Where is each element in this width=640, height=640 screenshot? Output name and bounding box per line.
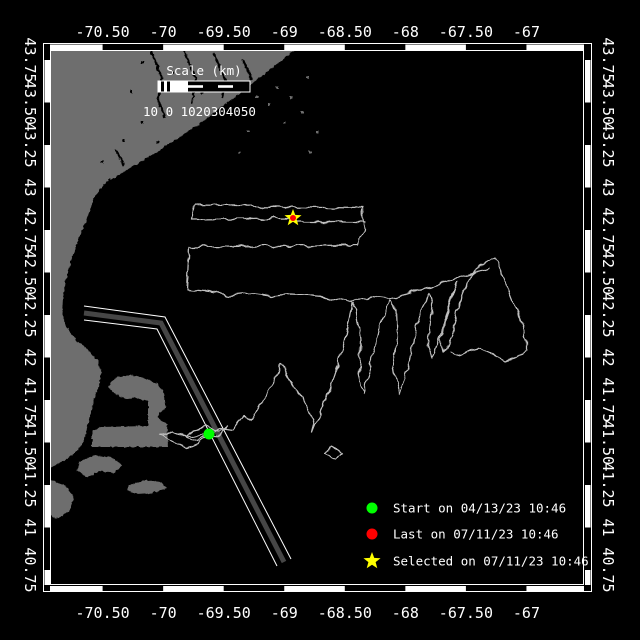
- y-tick-label-left: 43.25: [21, 122, 39, 167]
- frame-block-left: [45, 230, 51, 273]
- scale-bar-midline: [188, 85, 203, 88]
- y-tick-label-right: 43.50: [599, 80, 617, 125]
- scale-bar-segment: [173, 81, 188, 92]
- land-south-island: [50, 480, 74, 519]
- frame-block-right: [585, 145, 591, 188]
- land-marthas-vineyard: [77, 455, 123, 478]
- frame-block-bottom: [50, 586, 103, 592]
- islet-dot: [316, 131, 319, 134]
- scale-bar-midline: [218, 85, 233, 88]
- x-tick-label-bottom: -69: [271, 604, 298, 622]
- frame-block-bottom: [526, 586, 584, 592]
- x-tick-label-top: -69: [271, 23, 298, 41]
- y-tick-label-left: 41.75: [21, 377, 39, 422]
- x-tick-label-top: -68.50: [318, 23, 372, 41]
- legend-selected-star-icon: [363, 552, 380, 568]
- y-tick-label-right: 43: [599, 178, 617, 196]
- y-tick-label-right: 43.75: [599, 37, 617, 82]
- vessel-track: [161, 206, 527, 459]
- map-canvas[interactable]: -70.50-70.50-70-70-69.50-69.50-69-69-68.…: [0, 0, 640, 640]
- y-tick-label-right: 42.50: [599, 250, 617, 295]
- islet-dot: [262, 70, 265, 73]
- y-tick-label-left: 43.50: [21, 80, 39, 125]
- x-tick-label-bottom: -68: [392, 604, 419, 622]
- scale-bar-check: [164, 81, 167, 92]
- islet-dot: [306, 76, 309, 79]
- y-tick-label-left: 41.50: [21, 420, 39, 465]
- legend-start-dot-icon: [367, 503, 378, 514]
- x-tick-label-bottom: -67: [513, 604, 540, 622]
- x-tick-label-top: -67: [513, 23, 540, 41]
- frame-block-right: [585, 400, 591, 443]
- x-tick-label-bottom: -67.50: [439, 604, 493, 622]
- islet-dot: [283, 121, 286, 124]
- scale-bar-check: [170, 81, 173, 92]
- y-tick-label-left: 40.75: [21, 547, 39, 592]
- frame-block-right: [585, 485, 591, 528]
- legend-item-label: Last on 07/11/23 10:46: [393, 527, 559, 542]
- y-tick-label-left: 42: [21, 348, 39, 366]
- y-tick-label-left: 43.75: [21, 37, 39, 82]
- land-texture-dot: [156, 141, 159, 144]
- islet-dot: [256, 96, 259, 99]
- legend-item-label: Start on 04/13/23 10:46: [393, 501, 566, 516]
- islet-dot: [309, 151, 312, 154]
- glider-track-figure: -70.50-70.50-70-70-69.50-69.50-69-69-68.…: [0, 0, 640, 640]
- islet-dot: [290, 96, 293, 99]
- islet-dot: [238, 152, 241, 155]
- islet-dot: [301, 111, 304, 114]
- frame-block-bottom: [163, 586, 224, 592]
- legend-item-label: Selected on 07/11/23 10:46: [393, 554, 589, 569]
- frame-block-top: [163, 45, 224, 51]
- land-texture-dot: [91, 231, 94, 234]
- x-tick-label-top: -68: [392, 23, 419, 41]
- frame-block-top: [50, 45, 103, 51]
- land-texture-dot: [141, 61, 144, 64]
- frame-block-right: [585, 315, 591, 358]
- scale-bar-check: [158, 81, 161, 92]
- y-tick-label-right: 41.25: [599, 462, 617, 507]
- y-tick-label-right: 42.75: [599, 207, 617, 252]
- y-tick-label-left: 42.50: [21, 250, 39, 295]
- legend-item: Selected on 07/11/23 10:46: [363, 552, 588, 569]
- scale-bar-numbers: 10 0 1020304050: [143, 104, 256, 119]
- frame-block-left: [45, 315, 51, 358]
- y-tick-label-right: 41.50: [599, 420, 617, 465]
- islet-dot: [268, 103, 271, 106]
- frame-block-left: [45, 145, 51, 188]
- frame-block-left: [45, 400, 51, 443]
- y-tick-label-right: 43.25: [599, 122, 617, 167]
- frame-block-right: [585, 570, 591, 585]
- frame-block-top: [405, 45, 466, 51]
- land-texture-dot: [76, 301, 79, 304]
- start-marker[interactable]: [204, 429, 215, 440]
- y-tick-label-left: 41: [21, 518, 39, 536]
- track-segment-curl: [326, 447, 341, 459]
- x-tick-label-top: -69.50: [197, 23, 251, 41]
- last-marker[interactable]: [290, 215, 296, 221]
- islet-dot: [276, 86, 279, 89]
- y-tick-label-left: 43: [21, 178, 39, 196]
- y-tick-label-right: 40.75: [599, 547, 617, 592]
- scale-bar-label: Scale (km): [166, 63, 241, 78]
- legend-item: Last on 07/11/23 10:46: [367, 527, 559, 542]
- frame-block-right: [585, 60, 591, 103]
- y-tick-label-right: 41: [599, 518, 617, 536]
- y-tick-label-left: 42.25: [21, 292, 39, 337]
- frame-block-top: [284, 45, 345, 51]
- x-tick-label-bottom: -69.50: [197, 604, 251, 622]
- track-segment-return-serpentine: [187, 206, 490, 302]
- frame-block-bottom: [284, 586, 345, 592]
- track-markers: [204, 209, 302, 440]
- x-tick-label-bottom: -70.50: [76, 604, 130, 622]
- y-tick-label-right: 41.75: [599, 377, 617, 422]
- legend: Start on 04/13/23 10:46Last on 07/11/23 …: [363, 501, 588, 569]
- track-segment-main: [209, 258, 527, 434]
- land-texture-dot: [108, 178, 111, 181]
- frame-block-left: [45, 60, 51, 103]
- land-texture-dot: [130, 90, 133, 93]
- y-tick-label-right: 42.25: [599, 292, 617, 337]
- frame-block-bottom: [405, 586, 466, 592]
- legend-last-dot-icon: [367, 529, 378, 540]
- land-texture-dot: [122, 139, 125, 142]
- land-cape-cod: [92, 375, 168, 447]
- frame-block-left: [45, 485, 51, 528]
- land-texture-dot: [141, 121, 144, 124]
- x-tick-label-bottom: -68.50: [318, 604, 372, 622]
- frame-block-left: [45, 570, 51, 585]
- land-texture-dot: [101, 161, 104, 164]
- frame-block-right: [585, 230, 591, 273]
- plot-area: [50, 47, 527, 566]
- islet-dot: [247, 130, 250, 133]
- x-tick-label-top: -70: [150, 23, 177, 41]
- frame-block-top: [526, 45, 584, 51]
- y-tick-label-left: 42.75: [21, 207, 39, 252]
- x-tick-label-top: -67.50: [439, 23, 493, 41]
- y-tick-label-right: 42: [599, 348, 617, 366]
- land-nantucket: [127, 480, 167, 494]
- x-tick-label-top: -70.50: [76, 23, 130, 41]
- x-tick-label-bottom: -70: [150, 604, 177, 622]
- y-tick-label-left: 41.25: [21, 462, 39, 507]
- legend-item: Start on 04/13/23 10:46: [367, 501, 567, 516]
